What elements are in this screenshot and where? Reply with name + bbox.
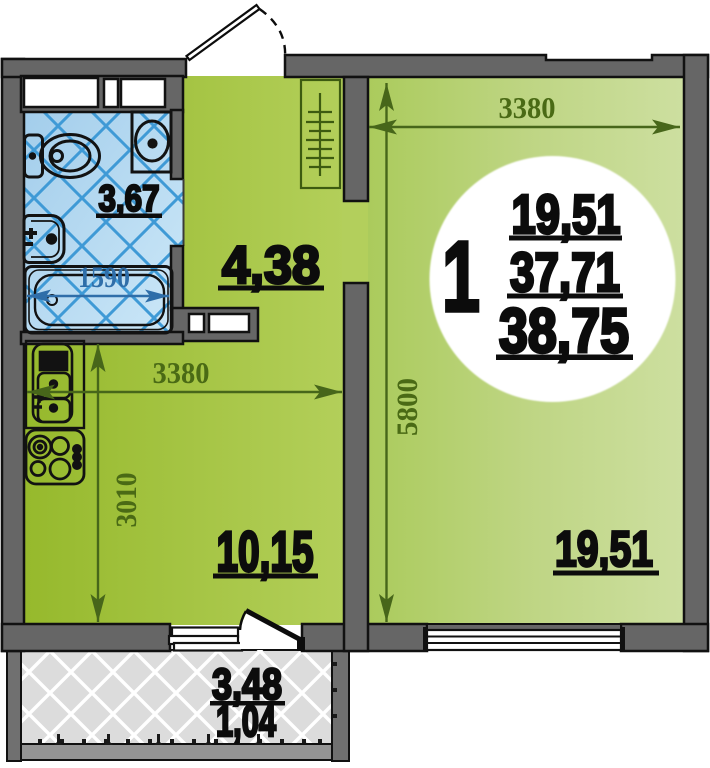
svg-text:3380: 3380 [153, 355, 210, 390]
svg-text:19,51: 19,51 [555, 521, 653, 577]
svg-text:3010: 3010 [110, 473, 143, 528]
svg-text:1,04: 1,04 [216, 697, 276, 746]
svg-text:1590: 1590 [78, 261, 130, 294]
svg-text:1: 1 [442, 221, 480, 333]
svg-text:5800: 5800 [391, 378, 424, 436]
svg-text:3380: 3380 [499, 90, 556, 125]
svg-text:3,67: 3,67 [99, 178, 160, 219]
